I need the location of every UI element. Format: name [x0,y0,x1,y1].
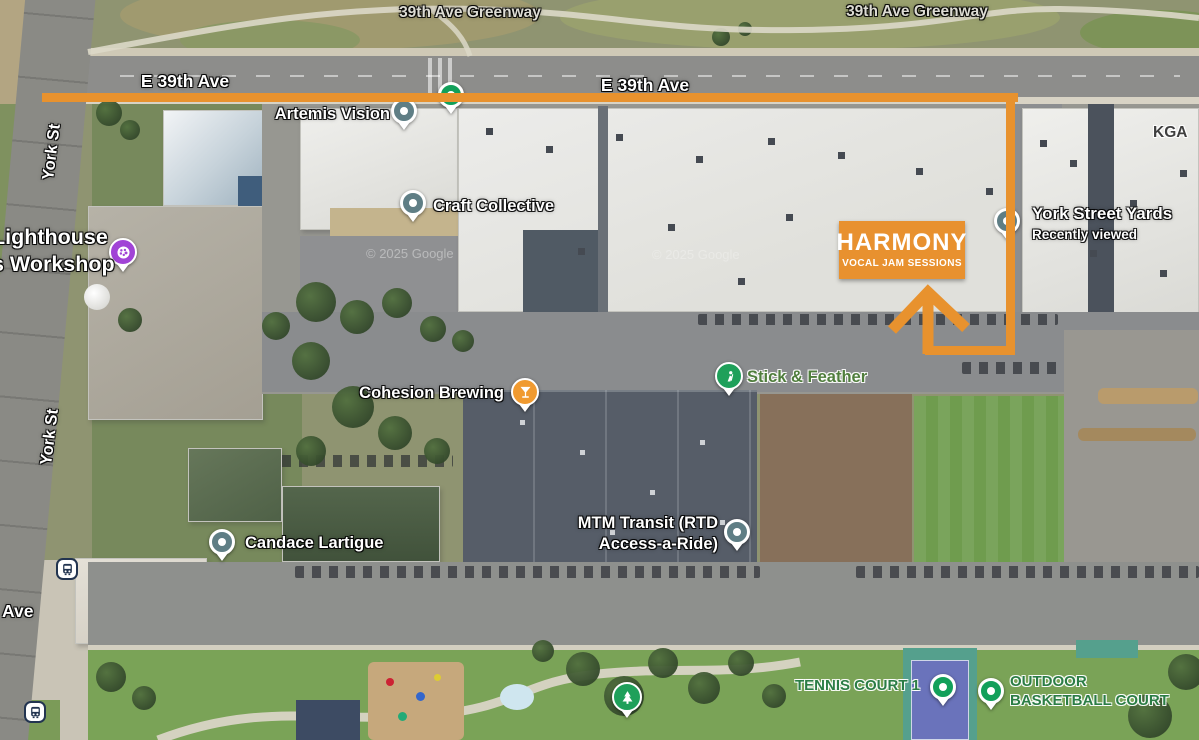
tree-canopy [1168,654,1199,690]
tree-canopy [688,672,720,704]
label-line: Lighthouse [0,225,108,249]
gravel-pile [1078,428,1196,441]
street-label-ave: Ave [2,601,33,621]
pool [500,684,534,710]
route-line-horizontal [42,93,1018,102]
rooftop-units [486,128,493,135]
badge-subtitle: VOCAL JAM SESSIONS [842,258,962,269]
map-pin-cohesion-brewing[interactable] [511,378,539,412]
playground-equipment [398,712,407,721]
tree-canopy [566,652,600,686]
parked-cars [856,566,1199,578]
map-pin-tennis-court[interactable] [930,674,956,706]
tree-canopy [382,288,412,318]
gravel-pile [1098,388,1198,404]
google-watermark: © 2025 Google [366,246,454,261]
dome-tank [84,284,110,310]
bus-icon[interactable] [24,701,46,723]
place-label-mtm-transit[interactable]: MTM Transit (RTD Access-a-Ride) [538,513,718,555]
bus-icon[interactable] [56,558,78,580]
playground-equipment [386,678,394,686]
tree-canopy [296,436,326,466]
place-label-tennis-court[interactable]: TENNIS COURT 1 [772,677,920,694]
harmony-event-badge: HARMONY VOCAL JAM SESSIONS [839,221,965,279]
tree-canopy [262,312,290,340]
badge-title: HARMONY [837,231,968,255]
label-line: MTM Transit (RTD [578,514,718,532]
pin-head [978,678,1004,704]
tree-canopy [532,640,554,662]
roof-detail [520,420,525,425]
tree-canopy [340,300,374,334]
map-pin-basketball-court[interactable] [978,678,1004,710]
tree-canopy [648,648,678,678]
map-pin-artemis-vision[interactable] [391,98,417,130]
sports-field [914,396,1064,564]
tree-canopy [292,342,330,380]
place-name: York Street Yards [1032,204,1172,223]
satellite-map[interactable]: © 2025 Google © 2025 Google HARMONY VOCA… [0,0,1199,740]
label-line: OUTDOOR [1010,673,1087,690]
map-pin-mtm-transit[interactable] [724,519,750,551]
pin-head [400,190,426,216]
playground-equipment [416,692,425,701]
tree-canopy [118,308,142,332]
place-label-basketball-court[interactable]: OUTDOOR BASKETBALL COURT [1010,672,1169,710]
label-line: BASKETBALL COURT [1010,692,1169,709]
industrial-yard [1064,330,1199,564]
pin-head [209,529,235,555]
tree-canopy [96,100,122,126]
roof-seam [598,106,608,318]
tree-canopy [120,120,140,140]
tree-canopy [420,316,446,342]
route-line-vertical [1006,93,1015,355]
place-label-artemis-vision[interactable]: Artemis Vision [238,105,390,124]
pin-head [724,519,750,545]
map-pin-candace-lartigue[interactable] [209,529,235,561]
tree-canopy [132,686,156,710]
map-pin-craft-collective[interactable] [400,190,426,222]
solar-roof-house [296,700,360,740]
solar-panels [238,176,262,206]
tree-canopy [96,662,126,692]
tree-canopy [378,416,412,450]
playground-equipment [434,674,441,681]
recently-viewed-note: Recently viewed [1032,227,1137,242]
place-label-candace-lartigue[interactable]: Candace Lartigue [245,534,383,553]
arrow-up-icon [878,272,982,358]
figure-icon [715,362,743,390]
label-line: s Workshop [0,252,115,276]
tree-canopy [296,282,336,322]
rooftop-units [1040,140,1047,147]
pin-head [930,674,956,700]
place-label-stick-and-feather[interactable]: Stick & Feather [747,368,867,387]
place-label-york-street-yards[interactable]: York Street Yards Recently viewed [1032,204,1172,243]
basketball-court [1076,640,1138,658]
label-line: Access-a-Ride) [599,535,718,553]
green-roof-building [188,448,282,522]
street-label-greenway: 39th Ave Greenway [352,4,588,22]
place-label-cohesion-brewing[interactable]: Cohesion Brewing [352,384,504,403]
label-kga: KGA [1153,124,1187,142]
street-label-e-39th-ave: E 39th Ave [122,71,248,91]
map-pin-park[interactable] [612,682,642,718]
dirt-field [760,394,912,562]
parked-cars [295,566,760,578]
tree-canopy [424,438,450,464]
street-label-greenway: 39th Ave Greenway [797,3,1037,21]
tree-canopy [728,650,754,676]
place-label-craft-collective[interactable]: Craft Collective [433,197,554,216]
tree-canopy [452,330,474,352]
pine-tree-icon [612,682,642,712]
cocktail-icon [511,378,539,406]
map-pin-stick-and-feather[interactable] [715,362,743,396]
place-label-lighthouse-workshop[interactable]: Lighthouse s Workshop [0,224,104,278]
google-watermark: © 2025 Google [652,247,740,262]
playground [368,662,464,740]
